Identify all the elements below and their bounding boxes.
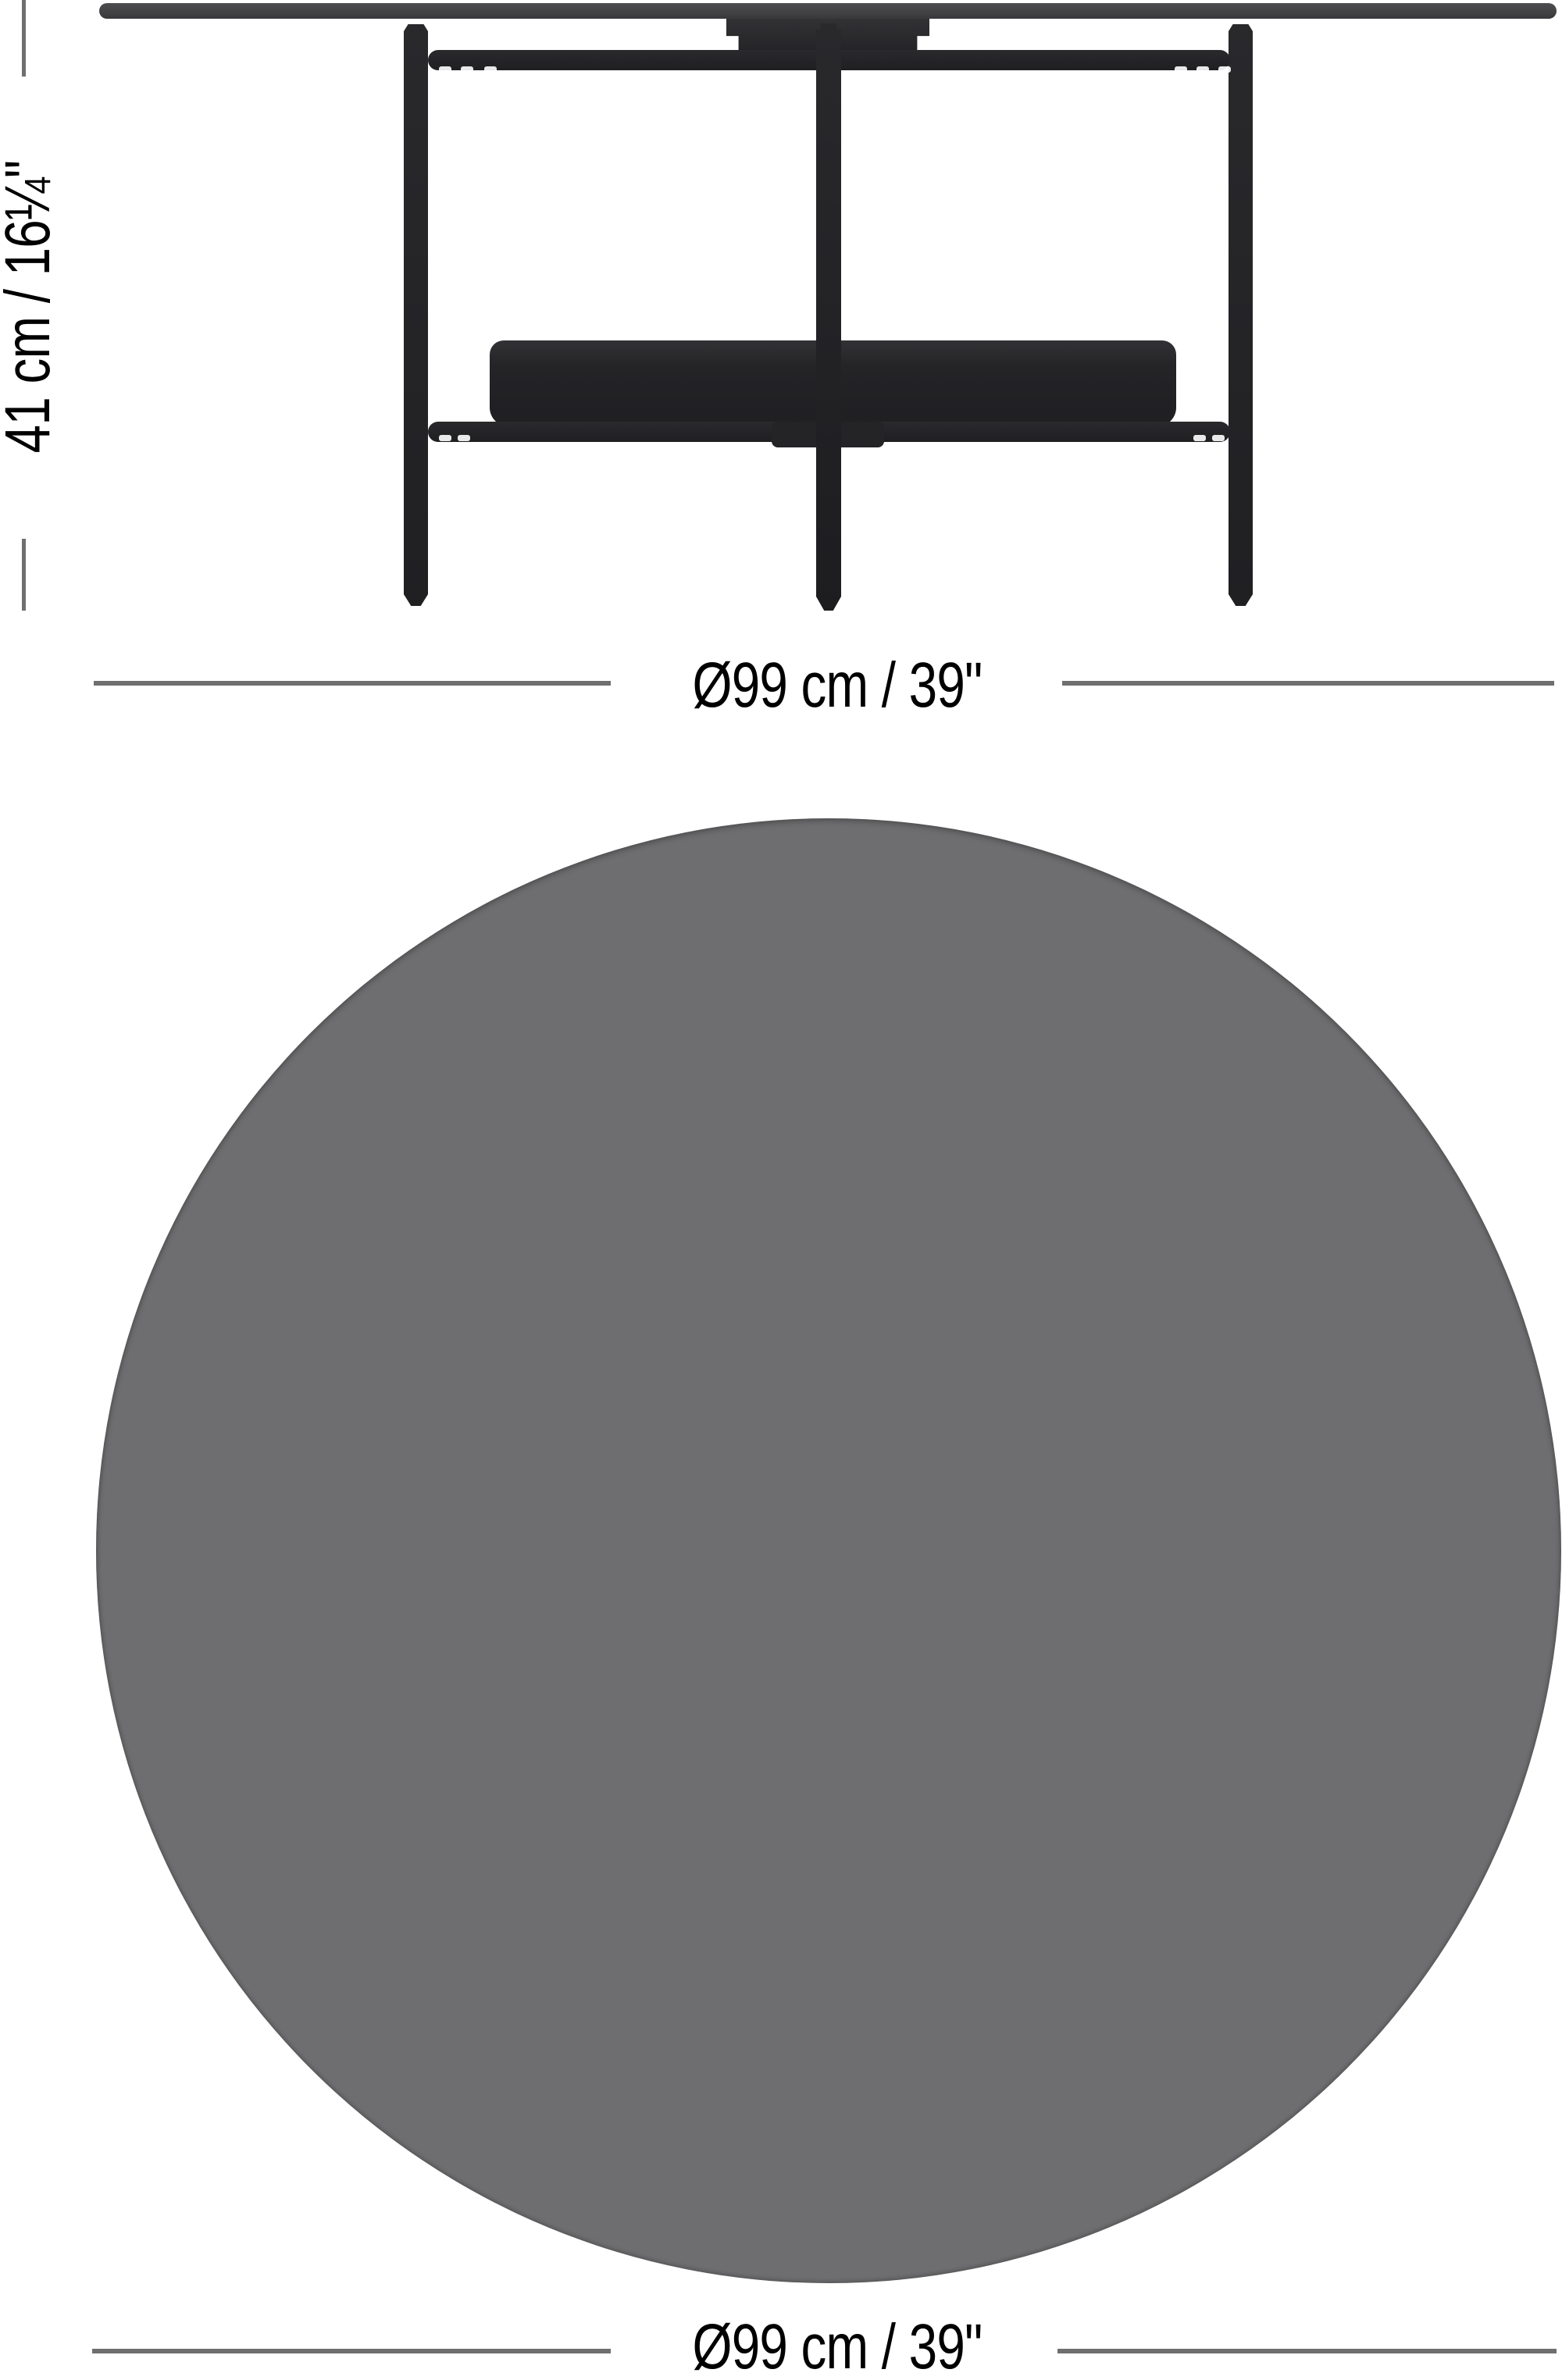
center-post bbox=[816, 23, 841, 611]
diameter-top-line-right bbox=[1062, 681, 1554, 686]
diameter-bottom-line-left bbox=[92, 2349, 611, 2353]
rail-notch bbox=[1175, 66, 1187, 73]
rail-notch bbox=[461, 66, 473, 73]
diameter-top-line-left bbox=[94, 681, 611, 686]
height-dimension-label: 41 cm / 16¼" bbox=[0, 113, 67, 501]
rail-notch bbox=[484, 66, 497, 73]
tabletop-top-view-circle bbox=[96, 818, 1561, 2283]
rail-notch bbox=[1196, 66, 1209, 73]
rail-notch bbox=[439, 66, 451, 73]
height-dimension-line-bottom bbox=[22, 539, 26, 611]
rail-notch bbox=[1212, 435, 1225, 441]
rail-notch bbox=[458, 435, 470, 441]
rail-notch bbox=[1193, 435, 1206, 441]
height-dimension-line-top bbox=[22, 0, 26, 77]
rail-notch bbox=[439, 435, 451, 441]
dimension-diagram-page: 41 cm / 16¼" Ø99 cm / 39" Ø99 cm / 39" bbox=[0, 0, 1562, 2380]
left-leg bbox=[404, 24, 428, 606]
tabletop-side bbox=[99, 3, 1557, 19]
diameter-top-label: Ø99 cm / 39" bbox=[644, 647, 1031, 725]
rail-notch bbox=[1218, 66, 1231, 73]
diameter-bottom-label: Ø99 cm / 39" bbox=[644, 2308, 1031, 2380]
right-leg bbox=[1229, 24, 1253, 606]
diameter-bottom-line-right bbox=[1057, 2349, 1557, 2353]
